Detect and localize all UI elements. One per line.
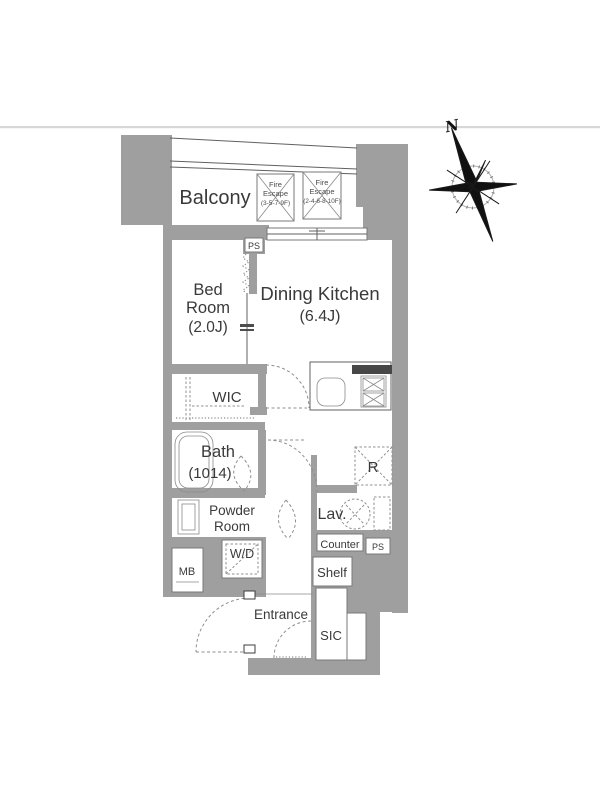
powder-door-arc <box>278 500 295 539</box>
fire-escape-1-line1: Fire <box>269 180 282 189</box>
sic-side-box <box>347 613 366 660</box>
powder-room-label-line2: Room <box>214 519 250 534</box>
sic-label: SIC <box>320 628 342 643</box>
kitchen-counter <box>310 362 392 410</box>
corridor-door-arcs <box>266 365 317 492</box>
stove-icon <box>361 376 386 407</box>
ps-bottom-label: PS <box>372 542 384 552</box>
dining-kitchen-label: Dining Kitchen <box>260 283 379 304</box>
bedroom-label-line1: Bed <box>193 281 222 299</box>
ps-top-label: PS <box>248 241 260 251</box>
dining-kitchen-size-label: (6.4J) <box>300 308 341 325</box>
fire-escape-2-line3: (2-4-6-8-10F) <box>303 198 340 205</box>
floor-plan-page: Balcony Fire Escape (3-5-7-9F) Fire Esca… <box>0 0 600 800</box>
wic-label: WIC <box>212 389 241 406</box>
powder-sink-icon <box>178 500 199 534</box>
balcony-railing <box>170 138 357 174</box>
floor-plan: Balcony Fire Escape (3-5-7-9F) Fire Esca… <box>0 0 600 800</box>
fire-escape-2-line1: Fire <box>316 178 329 187</box>
fire-escape-1-line3: (3-5-7-9F) <box>261 200 290 207</box>
bedroom-size-label: (2.0J) <box>188 319 228 336</box>
shelf-label: Shelf <box>317 565 347 580</box>
counter-label: Counter <box>320 539 359 551</box>
range-hood-icon <box>352 365 392 374</box>
bath-label: Bath <box>201 443 235 461</box>
lavatory-label: Lav. <box>317 506 346 523</box>
bathtub-icon <box>175 432 213 492</box>
entrance-label: Entrance <box>254 607 308 622</box>
bedroom-label-line2: Room <box>186 299 230 317</box>
compass-north-label: N <box>442 116 461 137</box>
bath-size-label: (1014) <box>188 465 231 482</box>
compass-rose: N <box>429 116 517 244</box>
toilet-icon <box>340 497 390 530</box>
sic-closet-box <box>316 588 347 660</box>
window-band <box>267 228 367 240</box>
sink-icon <box>317 378 345 406</box>
page-divider-line <box>0 126 600 128</box>
entrance-door-arc <box>196 591 255 653</box>
bath-door-arc <box>234 456 251 491</box>
refrigerator-label: R <box>368 459 379 476</box>
balcony-label: Balcony <box>179 187 250 209</box>
fire-escape-2-line2: Escape <box>309 187 334 196</box>
mb-label: MB <box>179 566 196 578</box>
fire-escape-1-line2: Escape <box>263 189 288 198</box>
hall-door-arc <box>274 621 311 658</box>
powder-room-label-line1: Powder <box>209 503 255 518</box>
wd-label: W/D <box>230 547 254 561</box>
